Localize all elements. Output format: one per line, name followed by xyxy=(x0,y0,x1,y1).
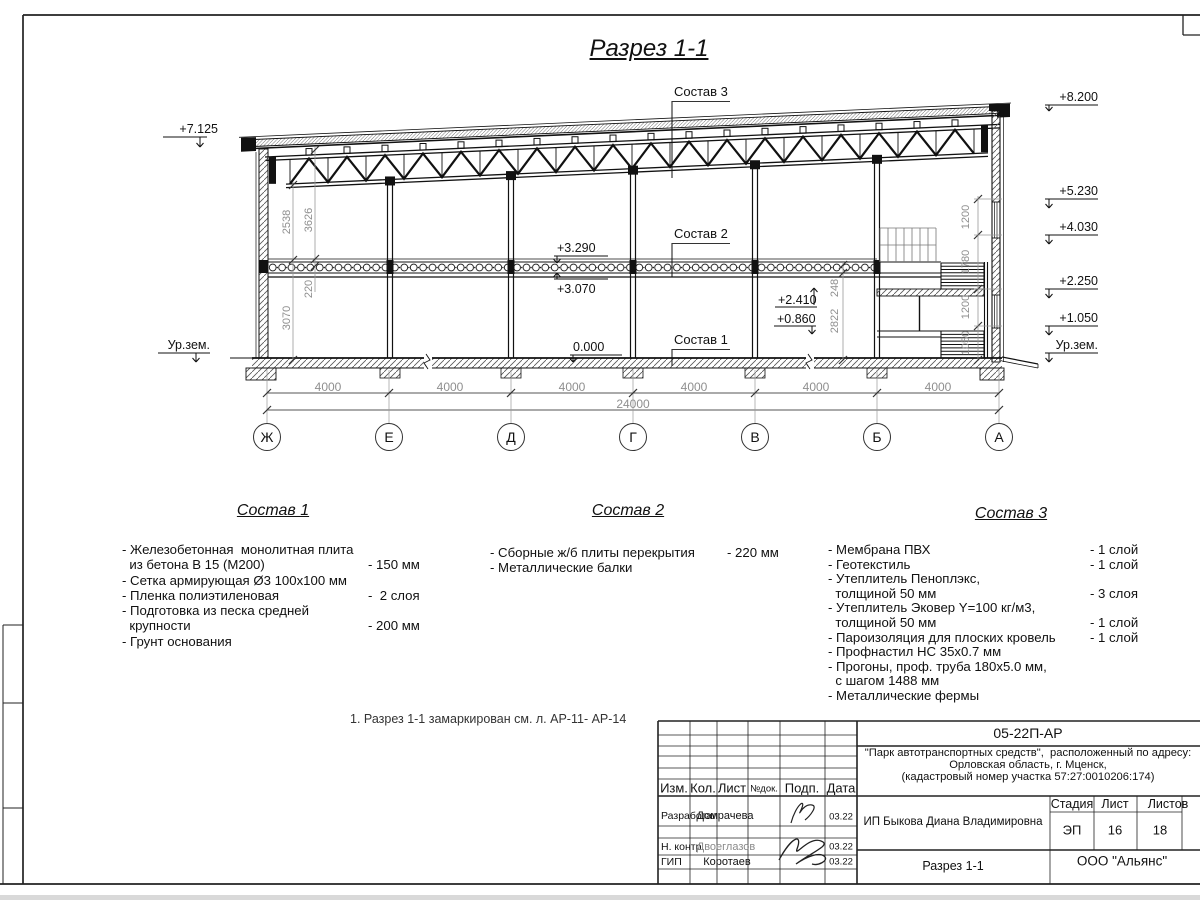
vertical-dim: 3070 xyxy=(281,306,293,330)
list-item: - Грунт основания xyxy=(122,634,452,649)
sostav1-title: Состав 1 xyxy=(237,502,309,520)
sheet-title: Разрез 1-1 xyxy=(922,859,983,873)
callout-sostav-1: Состав 1 xyxy=(672,332,730,350)
sostav2-title: Состав 2 xyxy=(592,502,664,520)
list-item: с шагом 1488 мм xyxy=(828,673,1158,688)
vertical-dim: 220 xyxy=(303,280,315,298)
span-dim: 4000 xyxy=(803,380,830,394)
tb-col-izm: Изм. xyxy=(660,781,688,796)
list-item: - Металлические фермы xyxy=(828,688,1158,703)
sostav3-list: - Мембрана ПВХ - 1 слой - Геотекстиль - … xyxy=(828,542,1158,703)
elevation-stair-lower: +0.860 xyxy=(777,312,816,326)
list-item: - Пароизоляция для плоских кровель - 1 с… xyxy=(828,630,1158,645)
span-dim: 4000 xyxy=(925,380,952,394)
span-dim: 4000 xyxy=(437,380,464,394)
list-item: - Железобетонная монолитная плита xyxy=(122,542,452,557)
elevation-right: +1.050 xyxy=(1040,311,1098,325)
drawing-note: 1. Разрез 1-1 замаркирован см. л. АР-11-… xyxy=(350,712,626,726)
list-item: - Сборные ж/б плиты перекрытия - 220 мм xyxy=(490,545,800,560)
list-item: толщиной 50 мм - 1 слой xyxy=(828,615,1158,630)
tb-date: 03.22 xyxy=(829,857,853,868)
tb-col-ndok: №док. xyxy=(750,784,778,795)
list-item: - Прогоны, проф. труба 180х5.0 мм, xyxy=(828,659,1158,674)
list-item: - Подготовка из песка средней xyxy=(122,603,452,618)
total-dim: 24000 xyxy=(616,397,649,411)
axis-label: Д xyxy=(506,429,515,445)
vertical-dim: 2538 xyxy=(281,210,293,234)
sheet-number: 16 xyxy=(1108,823,1122,838)
elevation-left-top: +7.125 xyxy=(160,122,218,136)
company-name: ООО "Альянс" xyxy=(1077,854,1167,869)
tb-name: Коротаев xyxy=(703,856,751,868)
project-line: Орловская область, г. Мценск, xyxy=(949,759,1107,771)
elevation-floor: 0.000 xyxy=(573,340,604,354)
list-item: - Утеплитель Пеноплэкс, xyxy=(828,571,1158,586)
list-item: - Профнастил НС 35х0.7 мм xyxy=(828,644,1158,659)
elevation-right: +4.030 xyxy=(1040,220,1098,234)
sostav2-list: - Сборные ж/б плиты перекрытия - 220 мм … xyxy=(490,545,800,576)
vertical-dim: 1200 xyxy=(960,295,972,319)
list-item: - Геотекстиль - 1 слой xyxy=(828,557,1158,572)
axis-label: Ж xyxy=(261,429,274,445)
list-item: из бетона В 15 (М200) - 150 мм xyxy=(122,557,452,572)
vertical-dim: 1050 xyxy=(960,331,972,355)
elevation-slab-top: +3.290 xyxy=(557,241,596,255)
binding-table xyxy=(3,625,23,884)
tb-role: ГИП xyxy=(661,856,682,868)
vertical-dim: 2822 xyxy=(829,309,841,333)
tb-col-podp: Подп. xyxy=(785,781,820,796)
project-line: (кадастровый номер участка 57:27:0010206… xyxy=(902,771,1155,783)
stage-label: Стадия xyxy=(1051,797,1094,811)
left-wall xyxy=(256,149,268,358)
elevation-right: +8.200 xyxy=(1040,90,1098,104)
sheets-total: 18 xyxy=(1153,823,1167,838)
sostav3-title: Состав 3 xyxy=(975,505,1047,523)
sheets-label: Листов xyxy=(1148,797,1189,811)
elevation-slab-bottom: +3.070 xyxy=(557,282,596,296)
elevation-right: +5.230 xyxy=(1040,184,1098,198)
client-name: ИП Быкова Диана Владимировна xyxy=(863,816,1042,828)
span-dim: 4000 xyxy=(559,380,586,394)
page-edge-shadow xyxy=(0,895,1200,900)
tb-date: 03.22 xyxy=(829,812,853,823)
stage-value: ЭП xyxy=(1063,823,1082,838)
tb-col-data: Дата xyxy=(827,781,856,796)
tb-name: Домрачева xyxy=(697,810,754,822)
vertical-dim: 1780 xyxy=(960,250,972,274)
axis-label: А xyxy=(994,429,1003,445)
list-item: толщиной 50 мм - 3 слоя xyxy=(828,586,1158,601)
list-item: - Утеплитель Эковер Y=100 кг/м3, xyxy=(828,600,1158,615)
vertical-dim: 1200 xyxy=(960,205,972,229)
list-item: - Мембрана ПВХ - 1 слой xyxy=(828,542,1158,557)
vertical-dim: 248 xyxy=(829,279,841,297)
signature-icon xyxy=(791,803,814,823)
list-item: - Металлические балки xyxy=(490,560,800,575)
axis-label: Б xyxy=(872,429,881,445)
axis-label: В xyxy=(750,429,759,445)
axis-label: Г xyxy=(629,429,637,445)
span-dim: 4000 xyxy=(681,380,708,394)
axis-label: Е xyxy=(384,429,393,445)
ground-level-right: Ур.зем. xyxy=(1040,338,1098,352)
list-item: - Пленка полиэтиленовая - 2 слоя xyxy=(122,588,452,603)
elevation-stair-upper: +2.410 xyxy=(778,293,817,307)
sheet-label: Лист xyxy=(1101,797,1128,811)
list-item: крупности - 200 мм xyxy=(122,618,452,633)
vertical-dim: 3626 xyxy=(303,208,315,232)
doc-number: 05-22П-АР xyxy=(993,725,1062,741)
sostav1-list: - Железобетонная монолитная плита из бет… xyxy=(122,542,452,649)
tb-date: 03.22 xyxy=(829,842,853,853)
right-wall xyxy=(989,104,1004,362)
list-item: - Сетка армирующая Ø3 100х100 мм xyxy=(122,573,452,588)
callout-sostav-2: Состав 2 xyxy=(672,226,730,244)
tb-col-list: Лист xyxy=(718,781,746,796)
project-line: "Парк автотранспортных средств", располо… xyxy=(865,747,1191,759)
columns xyxy=(385,155,882,358)
signature-icon xyxy=(779,839,826,864)
railing xyxy=(880,228,936,262)
page-title: Разрез 1-1 xyxy=(590,35,709,63)
tb-name: Двоеглазов xyxy=(697,841,755,853)
callout-sostav-3: Состав 3 xyxy=(672,84,730,102)
tb-col-kol: Кол. xyxy=(690,781,716,796)
elevation-right: +2.250 xyxy=(1040,274,1098,288)
ground-level-left: Ур.зем. xyxy=(152,338,210,352)
span-dim: 4000 xyxy=(315,380,342,394)
